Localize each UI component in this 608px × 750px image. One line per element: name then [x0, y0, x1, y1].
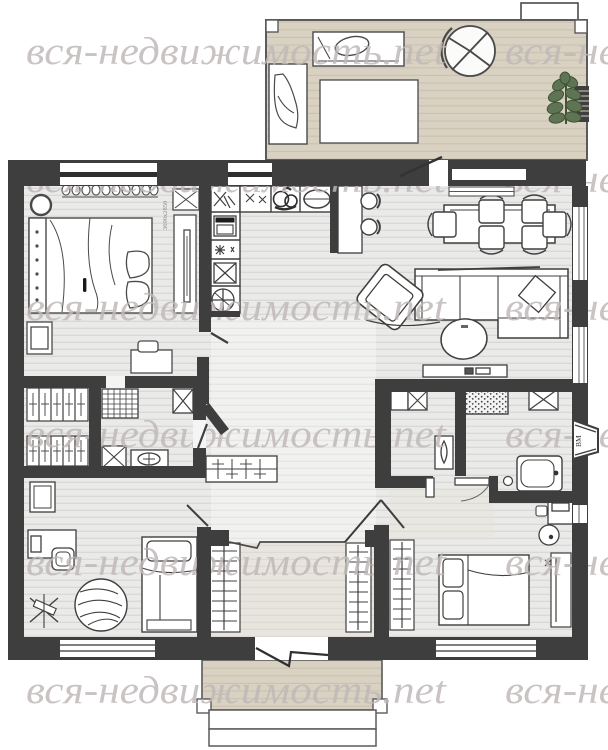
svg-text:вся-недвижимость.net: вся-недвижимость.net — [505, 669, 608, 712]
svg-text:вся-недвижимость.net: вся-недвижимость.net — [26, 30, 447, 73]
svg-text:3690x2850: 3690x2850 — [162, 201, 169, 230]
svg-text:ВМ: ВМ — [574, 435, 583, 447]
svg-text:вся-недвижимость.net: вся-недвижимость.net — [26, 286, 447, 329]
svg-text:вся-недвижимость.net: вся-недвижимость.net — [505, 541, 608, 584]
svg-text:вся-недвижимость.net: вся-недвижимость.net — [505, 30, 608, 73]
svg-text:вся-недвижимость.net: вся-недвижимость.net — [505, 286, 608, 329]
svg-text:вся-недвижимость.net: вся-недвижимость.net — [26, 669, 447, 712]
